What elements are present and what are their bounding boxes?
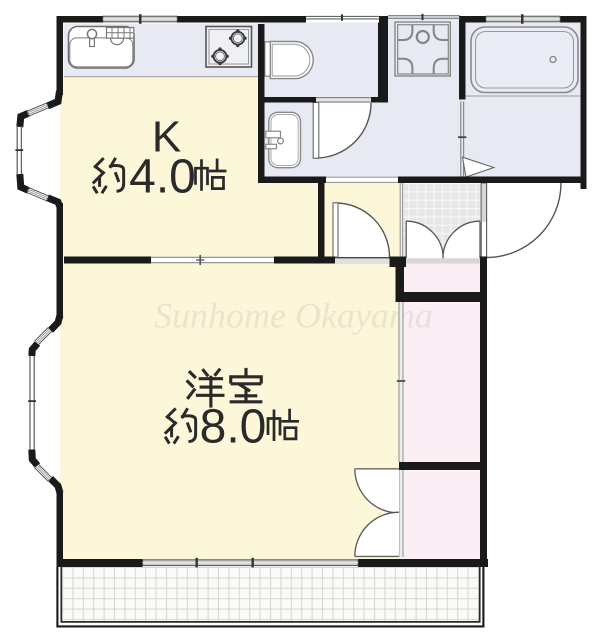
svg-text:4.0: 4.0 <box>129 151 196 204</box>
svg-text:8.0: 8.0 <box>200 401 267 454</box>
svg-text:Sunhome Okayama: Sunhome Okayama <box>154 296 433 336</box>
